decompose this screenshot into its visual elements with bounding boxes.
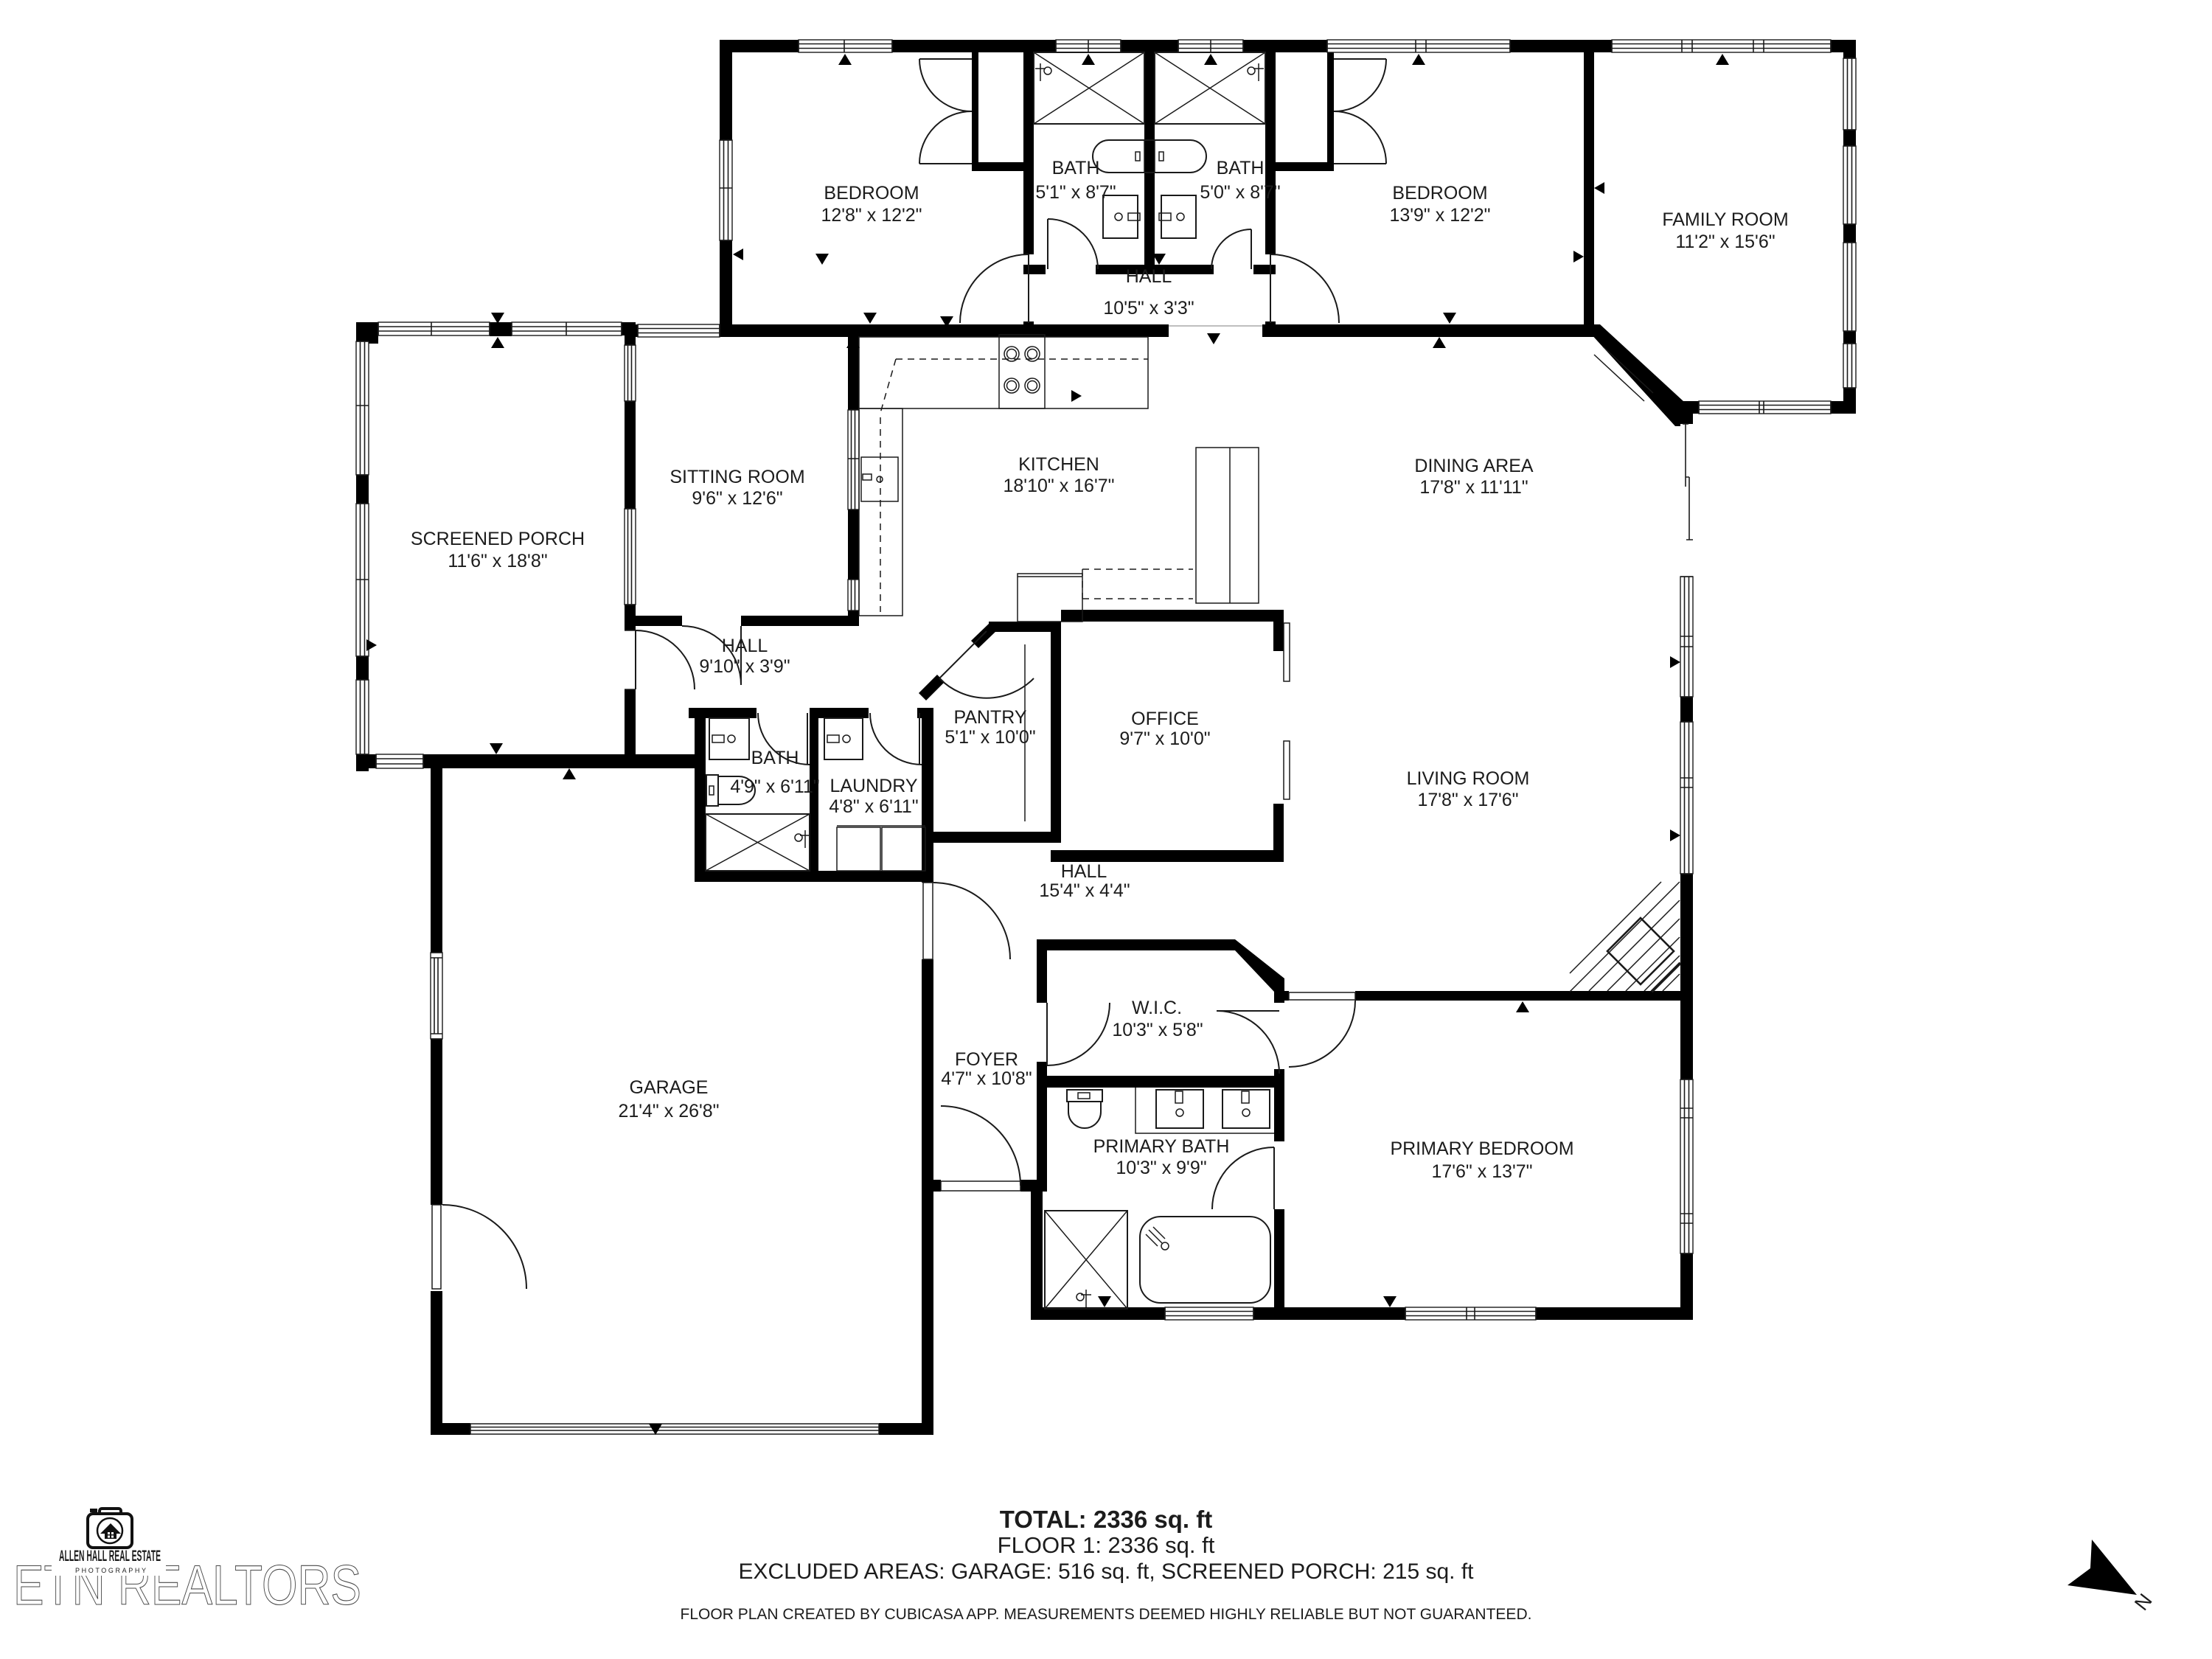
svg-text:PANTRY: PANTRY: [953, 707, 1026, 728]
svg-text:FAMILY ROOM: FAMILY ROOM: [1662, 209, 1788, 230]
svg-text:HALL: HALL: [722, 636, 768, 656]
svg-text:10'5" x 3'3": 10'5" x 3'3": [1103, 298, 1194, 319]
svg-text:11'6" x 18'8": 11'6" x 18'8": [448, 551, 547, 571]
svg-text:ALLEN HALL REAL ESTATE: ALLEN HALL REAL ESTATE: [59, 1548, 161, 1565]
svg-text:9'6" x 12'6": 9'6" x 12'6": [692, 488, 782, 509]
svg-text:FOYER: FOYER: [955, 1049, 1018, 1070]
svg-text:17'8" x 17'6": 17'8" x 17'6": [1417, 790, 1518, 810]
svg-text:KITCHEN: KITCHEN: [1018, 454, 1099, 475]
svg-text:5'1" x 8'7": 5'1" x 8'7": [1035, 182, 1116, 203]
svg-text:BATH: BATH: [1052, 158, 1100, 178]
svg-text:OFFICE: OFFICE: [1131, 709, 1199, 729]
svg-text:PHOTOGRAPHY: PHOTOGRAPHY: [75, 1567, 146, 1574]
svg-text:5'0" x 8'7": 5'0" x 8'7": [1200, 182, 1280, 203]
svg-text:12'8" x 12'2": 12'8" x 12'2": [821, 205, 922, 226]
svg-text:GARAGE: GARAGE: [630, 1077, 709, 1098]
svg-text:10'3" x 5'8": 10'3" x 5'8": [1112, 1020, 1203, 1040]
svg-text:TOTAL: 2336 sq. ft: TOTAL: 2336 sq. ft: [1000, 1506, 1213, 1533]
svg-text:EXCLUDED AREAS: GARAGE: 516 sq: EXCLUDED AREAS: GARAGE: 516 sq. ft, SCRE…: [738, 1559, 1474, 1584]
svg-text:W.I.C.: W.I.C.: [1132, 998, 1182, 1018]
svg-text:10'3" x 9'9": 10'3" x 9'9": [1116, 1158, 1206, 1178]
svg-text:PRIMARY BATH: PRIMARY BATH: [1093, 1136, 1230, 1157]
svg-text:4'8" x 6'11": 4'8" x 6'11": [829, 796, 918, 817]
svg-text:FLOOR PLAN CREATED BY CUBICASA: FLOOR PLAN CREATED BY CUBICASA APP. MEAS…: [681, 1606, 1532, 1623]
svg-text:LIVING ROOM: LIVING ROOM: [1407, 768, 1530, 789]
svg-text:21'4" x 26'8": 21'4" x 26'8": [618, 1101, 719, 1121]
svg-text:HALL: HALL: [1126, 266, 1172, 287]
svg-text:BATH: BATH: [1217, 158, 1265, 178]
svg-text:LAUNDRY: LAUNDRY: [829, 776, 917, 796]
svg-text:PRIMARY BEDROOM: PRIMARY BEDROOM: [1390, 1138, 1573, 1159]
svg-text:BEDROOM: BEDROOM: [1392, 183, 1487, 204]
svg-text:4'9" x 6'11": 4'9" x 6'11": [730, 776, 819, 797]
svg-text:13'9" x 12'2": 13'9" x 12'2": [1389, 205, 1490, 226]
svg-text:DINING AREA: DINING AREA: [1414, 456, 1533, 476]
svg-text:17'8" x 11'11": 17'8" x 11'11": [1419, 477, 1528, 498]
svg-text:SCREENED PORCH: SCREENED PORCH: [411, 529, 585, 549]
svg-text:BATH: BATH: [751, 748, 799, 768]
svg-text:FLOOR 1: 2336 sq. ft: FLOOR 1: 2336 sq. ft: [998, 1532, 1215, 1558]
svg-text:9'10" x 3'9": 9'10" x 3'9": [699, 656, 790, 677]
svg-text:5'1" x 10'0": 5'1" x 10'0": [945, 727, 1035, 748]
svg-text:SITTING ROOM: SITTING ROOM: [669, 467, 804, 487]
svg-text:BEDROOM: BEDROOM: [824, 183, 919, 204]
svg-text:9'7" x 10'0": 9'7" x 10'0": [1119, 728, 1210, 749]
svg-text:4'7" x 10'8": 4'7" x 10'8": [941, 1068, 1032, 1089]
svg-text:15'4" x 4'4": 15'4" x 4'4": [1039, 880, 1130, 901]
svg-text:11'2" x 15'6": 11'2" x 15'6": [1675, 232, 1775, 252]
svg-text:HALL: HALL: [1061, 861, 1107, 882]
svg-text:17'6" x 13'7": 17'6" x 13'7": [1431, 1161, 1532, 1182]
svg-text:18'10" x 16'7": 18'10" x 16'7": [1003, 476, 1114, 496]
